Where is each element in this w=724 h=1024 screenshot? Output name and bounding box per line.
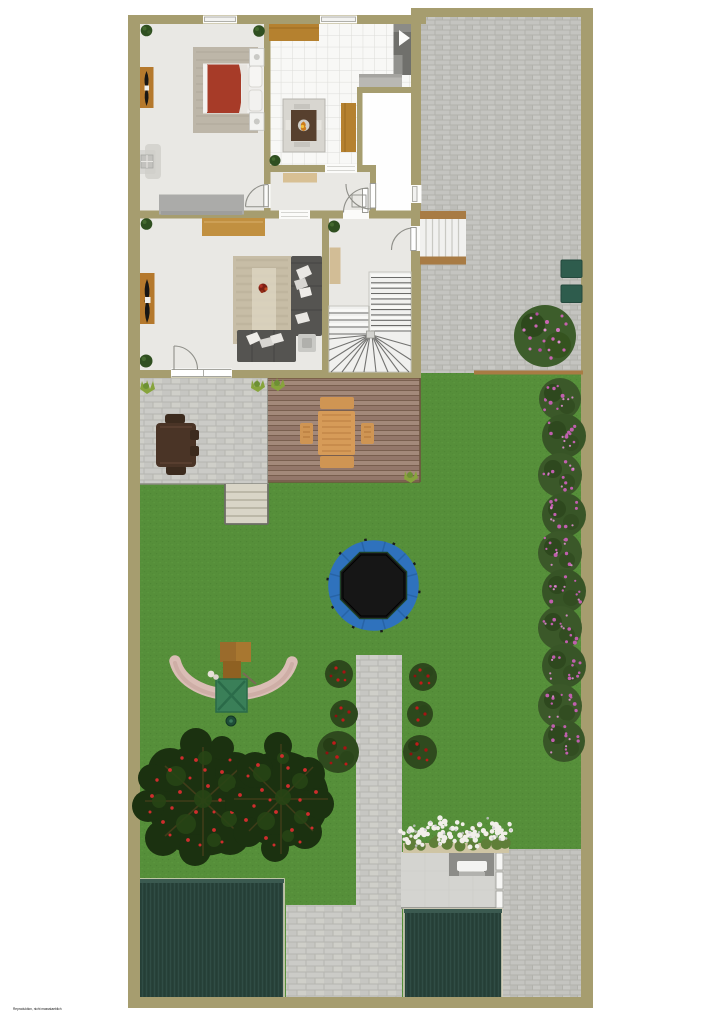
svg-text:Reproduktion, nicht massstaebl: Reproduktion, nicht massstaeblich xyxy=(13,1007,62,1011)
